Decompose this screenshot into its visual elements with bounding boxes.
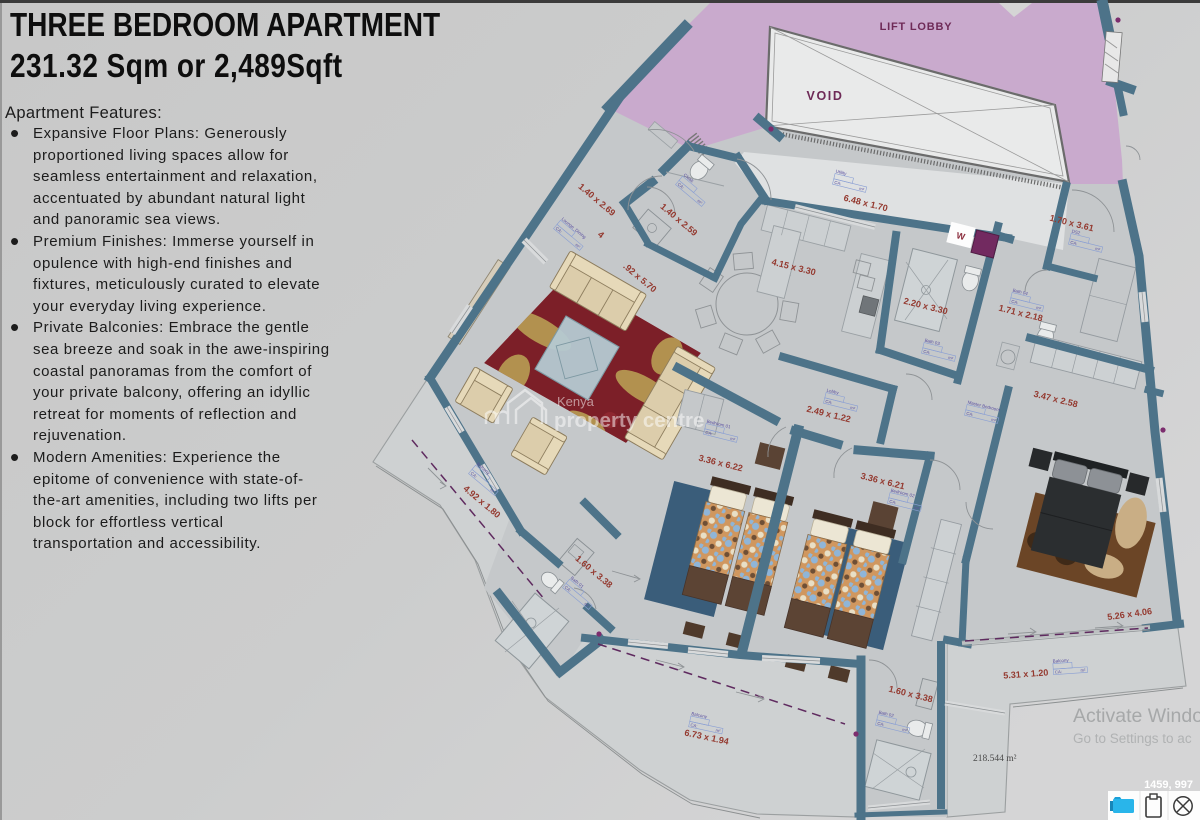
svg-text:1459, 997: 1459, 997	[1144, 779, 1193, 791]
svg-text:218.544 m²: 218.544 m²	[973, 754, 1017, 764]
svg-text:property centre: property centre	[554, 409, 704, 432]
svg-text:VOID: VOID	[807, 89, 844, 103]
svg-text:Activate Windo: Activate Windo	[1073, 705, 1200, 727]
svg-text:LIFT LOBBY: LIFT LOBBY	[880, 21, 953, 33]
svg-text:Kenya: Kenya	[557, 394, 595, 409]
svg-text:Go to Settings to ac: Go to Settings to ac	[1073, 731, 1192, 746]
svg-text:CA:: CA:	[1055, 669, 1062, 674]
